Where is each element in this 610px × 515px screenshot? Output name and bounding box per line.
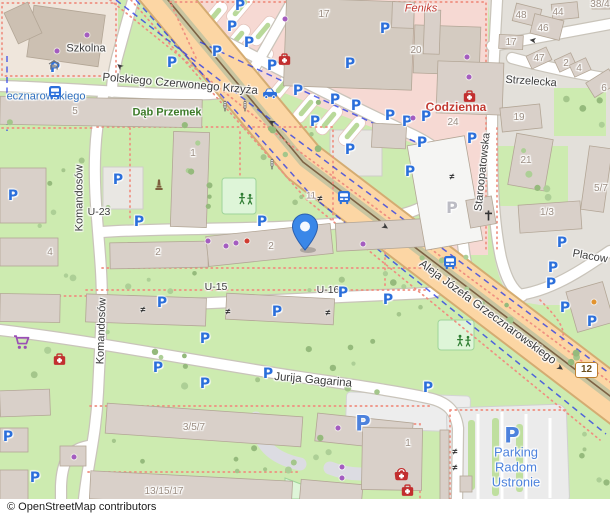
attribution[interactable]: © OpenStreetMap contributors [0, 499, 610, 515]
map-screenshot: Polskiego Czerwonego KrzyżaSzkolnaecznar… [0, 0, 610, 515]
map-viewport[interactable]: Polskiego Czerwonego KrzyżaSzkolnaecznar… [0, 0, 610, 499]
